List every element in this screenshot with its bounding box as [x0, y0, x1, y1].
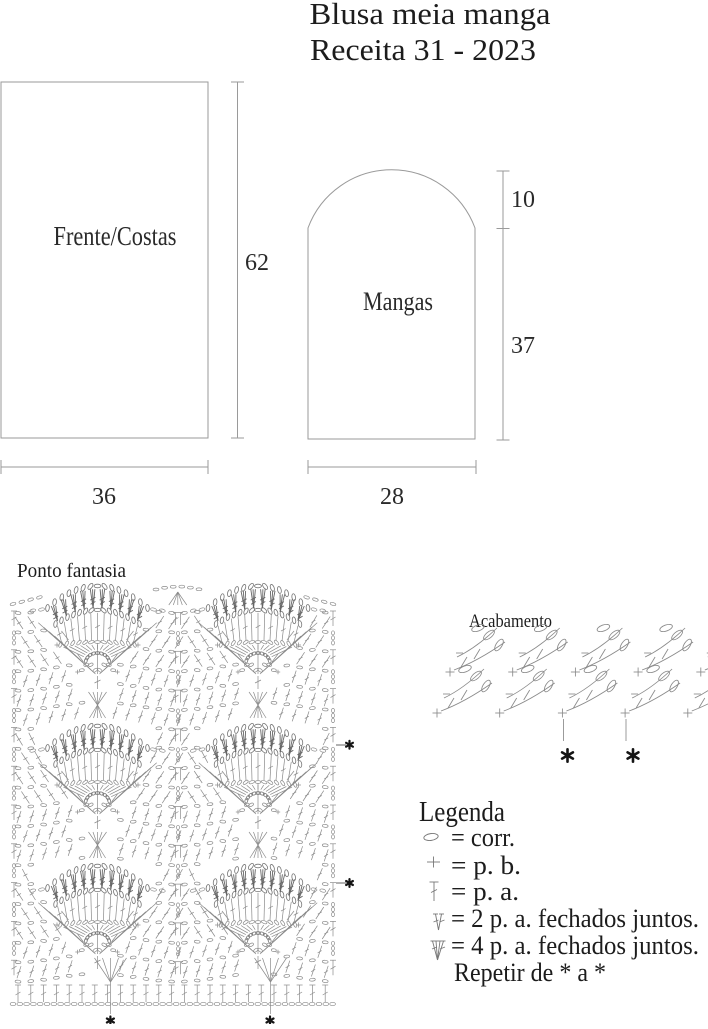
- svg-text:Blusa meia manga: Blusa meia manga: [310, 0, 551, 31]
- svg-text:Frente/Costas: Frente/Costas: [54, 221, 177, 251]
- svg-text:= 2 p. a. fechados juntos.: = 2 p. a. fechados juntos.: [451, 904, 699, 933]
- svg-text:= p. b.: = p. b.: [451, 851, 521, 880]
- svg-text:Acabamento: Acabamento: [469, 611, 552, 632]
- svg-text:Repetir de * a *: Repetir de * a *: [454, 958, 606, 987]
- svg-text:Mangas: Mangas: [363, 287, 433, 316]
- svg-text:= p. a.: = p. a.: [451, 877, 519, 906]
- svg-text:36: 36: [92, 484, 116, 510]
- svg-text:62: 62: [245, 250, 269, 276]
- svg-text:Ponto fantasia: Ponto fantasia: [17, 560, 126, 582]
- svg-text:10: 10: [511, 187, 535, 213]
- svg-text:= 4 p. a. fechados juntos.: = 4 p. a. fechados juntos.: [451, 931, 699, 960]
- svg-text:Receita 31 - 2023: Receita 31 - 2023: [310, 32, 536, 67]
- svg-text:28: 28: [380, 484, 404, 510]
- svg-text:= corr.: = corr.: [451, 823, 515, 852]
- svg-text:37: 37: [511, 333, 535, 359]
